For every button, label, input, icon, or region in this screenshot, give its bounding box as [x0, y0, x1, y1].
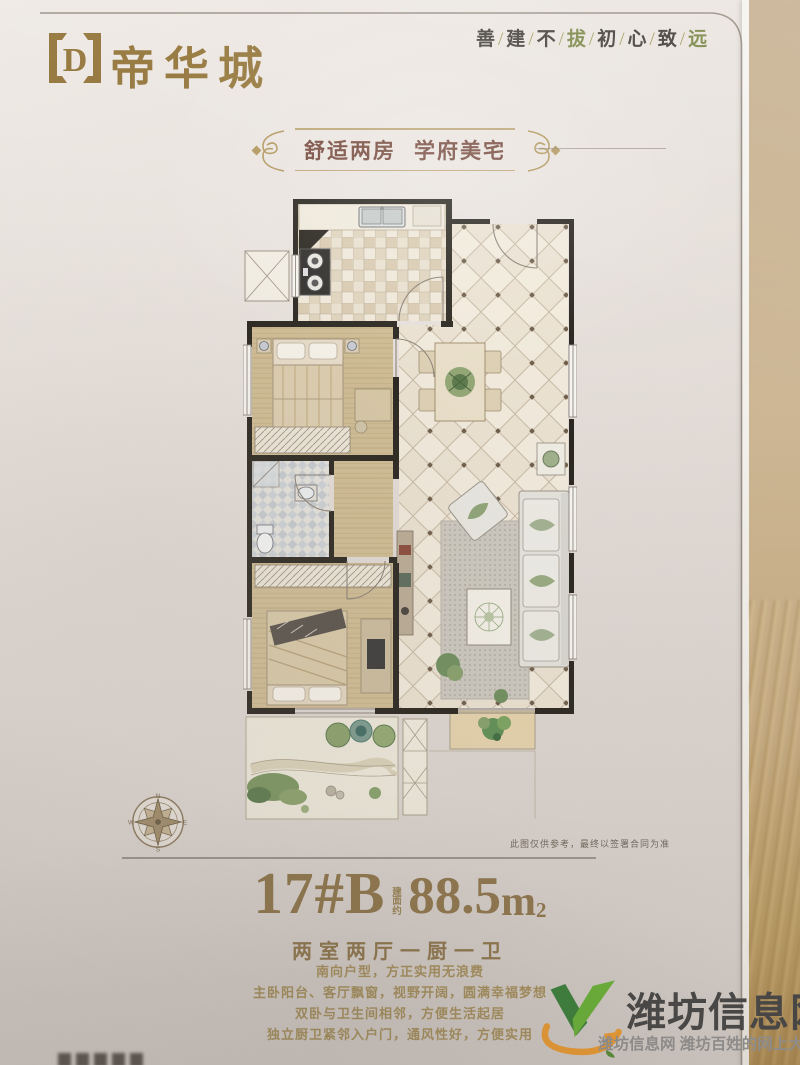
flourish-icon: [250, 128, 286, 174]
banner: 舒适两房学府美宅: [287, 126, 523, 173]
bath-sink-icon: [295, 485, 317, 501]
tv-cabinet: [397, 531, 413, 635]
banner-text-left: 舒适两房: [304, 139, 396, 163]
disclaimer-text: 此图仅供参考，最终以签署合同为准: [505, 837, 675, 850]
slogan-char: 初: [597, 29, 616, 50]
toilet-icon: [257, 525, 273, 553]
compass-s: S: [156, 847, 160, 852]
corridor-floor: [334, 461, 393, 557]
kitchen-counter: [299, 204, 445, 230]
brand-name: 帝华城: [110, 32, 272, 97]
equipment-platform: [245, 251, 289, 301]
slogan-char: 不: [537, 29, 556, 50]
plant-icon: [447, 665, 463, 681]
unit-title: 17#B建面约88.5m2: [0, 864, 800, 923]
cropped-bottom-text: [58, 1053, 143, 1065]
bed-master: [273, 339, 343, 427]
compass-w: W: [128, 819, 134, 826]
compass-n: N: [156, 793, 161, 800]
slogan-char: 远: [688, 29, 707, 50]
dresser-tv: [361, 619, 391, 693]
side-table: [537, 443, 565, 475]
wardrobe: [255, 427, 350, 453]
slogan-char: 致: [658, 29, 677, 50]
floor-plan: [243, 193, 577, 827]
slogan-char: 善: [476, 29, 495, 50]
watermark-site-name: 潍坊信息网: [626, 980, 800, 1038]
plant-icon: [494, 689, 508, 703]
sofa: [519, 491, 569, 667]
area-superscript: 2: [536, 898, 547, 923]
slogan-char: 拔: [567, 29, 586, 50]
stove-icon: [300, 249, 330, 295]
brand-logo: D: [46, 30, 104, 86]
entry-floor: [452, 224, 568, 325]
slogan-char: 建: [506, 29, 525, 50]
unit-layout: 两室两厅一厨一卫: [0, 935, 800, 964]
compass-rose-icon: N E S W: [128, 792, 188, 852]
area-label: 建面约: [392, 889, 403, 918]
living-balcony: [450, 711, 535, 749]
area-value: 88.5: [408, 870, 501, 923]
unit-number: 17#B: [253, 864, 385, 923]
banner-tail-line: [536, 148, 666, 149]
slogan-char: 心: [627, 29, 646, 50]
banner-text-right: 学府美宅: [414, 139, 506, 163]
divider-line: [122, 857, 596, 859]
shaft: [403, 719, 427, 815]
logo-letter: D: [63, 42, 88, 79]
watermark: 潍坊信息网 潍坊信息网 潍坊百姓的网上大集: [534, 972, 800, 1065]
bush-icon: [326, 723, 350, 747]
watermark-tagline: 潍坊信息网 潍坊百姓的网上大集: [598, 1032, 800, 1054]
garden-balcony: [246, 717, 398, 819]
slogan: 善/建/不/拔/初/心/致/远: [476, 24, 707, 51]
shower: [253, 461, 279, 487]
area-unit: m: [501, 881, 536, 923]
banner-line-top: [295, 128, 515, 130]
bush-icon: [373, 725, 395, 747]
wardrobe: [255, 565, 391, 587]
bed-second: [267, 608, 347, 705]
flourish-icon: [526, 128, 562, 174]
banner-line-bottom: [295, 170, 515, 172]
compass-e: E: [183, 819, 187, 826]
flyer-photo: D 帝华城 善/建/不/拔/初/心/致/远 舒适两房学府美宅: [0, 0, 800, 1065]
coffee-table: [467, 589, 511, 645]
